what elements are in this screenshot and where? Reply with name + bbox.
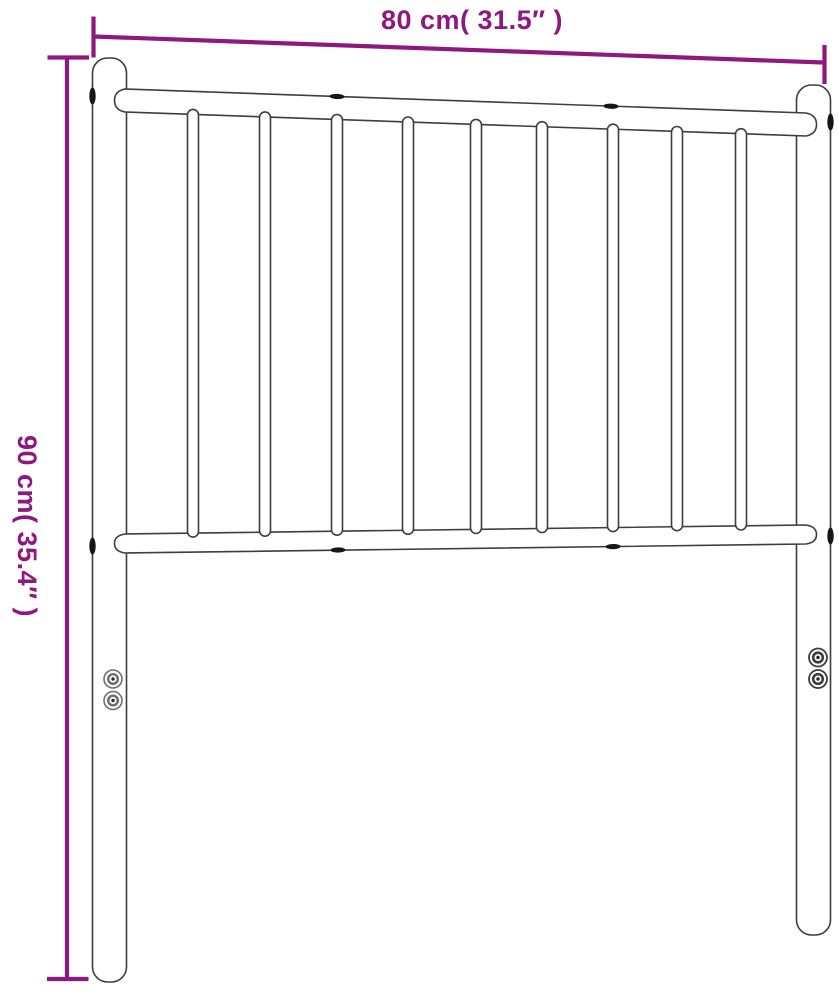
hardware-details xyxy=(89,88,833,555)
slat xyxy=(260,112,271,536)
side-bolt xyxy=(827,114,833,131)
slat xyxy=(403,117,414,534)
side-bolt xyxy=(89,538,95,555)
top-rail xyxy=(115,89,817,136)
left-post xyxy=(93,58,127,982)
side-bolt xyxy=(89,88,95,105)
right-post xyxy=(797,85,831,935)
slat xyxy=(332,115,343,536)
slat xyxy=(188,109,199,537)
headboard-drawing xyxy=(93,58,831,982)
height-dimension-label: 90 cm( 35.4″ ) xyxy=(12,435,42,617)
bottom-rail xyxy=(115,525,817,553)
diagram-canvas: 80 cm( 31.5″ ) 90 cm( 35.4″ ) xyxy=(0,0,839,1003)
side-bolt xyxy=(827,528,833,545)
slat xyxy=(471,119,482,533)
slat xyxy=(537,122,548,533)
slat xyxy=(736,129,747,530)
slat xyxy=(608,124,619,531)
width-dimension-line xyxy=(94,37,824,63)
width-dimension-label: 80 cm( 31.5″ ) xyxy=(381,5,563,35)
slat xyxy=(672,127,683,531)
dimension-annotations xyxy=(47,17,825,980)
product-dimension-image: 80 cm( 31.5″ ) 90 cm( 35.4″ ) xyxy=(0,0,839,1003)
